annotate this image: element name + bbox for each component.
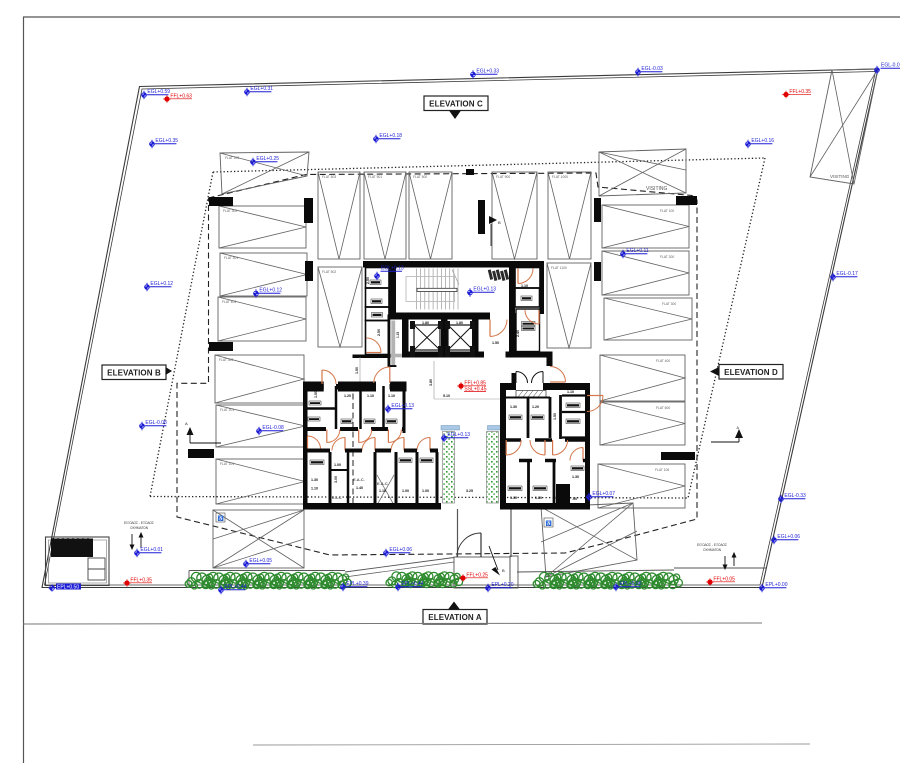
svg-text:A: A <box>185 421 188 426</box>
svg-text:EGL+0.05: EGL+0.05 <box>249 558 272 564</box>
svg-text:1.80: 1.80 <box>456 321 463 325</box>
svg-text:EPL+0.20: EPL+0.20 <box>491 582 513 588</box>
svg-text:1.00: 1.00 <box>422 489 429 493</box>
svg-text:EGL+0.13: EGL+0.13 <box>381 266 404 272</box>
svg-text:EPL+0.00: EPL+0.00 <box>765 582 787 588</box>
svg-text:3.25: 3.25 <box>466 489 473 493</box>
svg-text:FLAT 106: FLAT 106 <box>655 468 669 472</box>
svg-text:1.10: 1.10 <box>311 487 318 491</box>
svg-text:FLAT 303: FLAT 303 <box>219 358 233 362</box>
svg-text:1.30: 1.30 <box>572 475 579 479</box>
svg-text:ΕΙΞΟΔΟΣ - ΕΞΟΔΟΣ: ΕΙΞΟΔΟΣ - ΕΞΟΔΟΣ <box>124 521 154 525</box>
svg-text:.90: .90 <box>572 497 577 501</box>
svg-text:EPL+0.39: EPL+0.39 <box>346 581 368 587</box>
svg-text:1.10: 1.10 <box>379 489 386 493</box>
svg-text:.50: .50 <box>553 496 558 500</box>
svg-text:1.30: 1.30 <box>311 478 318 482</box>
svg-text:EGL+0.12: EGL+0.12 <box>259 288 282 294</box>
svg-text:♿: ♿ <box>218 515 224 522</box>
svg-text:FLAT 1100: FLAT 1100 <box>551 266 567 270</box>
svg-text:1.50: 1.50 <box>355 367 359 374</box>
svg-text:FLAT 503: FLAT 503 <box>322 175 336 179</box>
svg-text:2.40: 2.40 <box>516 330 520 337</box>
svg-text:3.80: 3.80 <box>429 379 433 386</box>
svg-text:E.A.C.: E.A.C. <box>377 481 389 486</box>
svg-text:FLAT 302: FLAT 302 <box>223 209 237 213</box>
svg-text:EGL-0.03: EGL-0.03 <box>641 66 663 72</box>
svg-text:EGL+0.18: EGL+0.18 <box>379 133 402 139</box>
svg-text:3.00: 3.00 <box>334 476 338 483</box>
svg-text:EPL+0.06: EPL+0.06 <box>619 581 641 587</box>
svg-text:FLAT 201: FLAT 201 <box>220 408 234 412</box>
svg-text:EGL+0.07: EGL+0.07 <box>592 491 615 497</box>
svg-text:FLAT 100: FLAT 100 <box>660 209 674 213</box>
svg-text:EGL-0.33: EGL-0.33 <box>784 493 806 499</box>
svg-text:EGL+0.13: EGL+0.13 <box>391 403 414 409</box>
svg-text:EGL+0.16: EGL+0.16 <box>751 138 774 144</box>
svg-text:FLAT 900: FLAT 900 <box>496 175 510 179</box>
svg-text:FLAT 501: FLAT 501 <box>368 175 382 179</box>
svg-text:♿: ♿ <box>546 520 552 527</box>
svg-text:EGL+0.13: EGL+0.13 <box>473 287 496 293</box>
svg-text:EGL+0.31: EGL+0.31 <box>250 86 273 92</box>
svg-text:ELEVATION B: ELEVATION B <box>107 369 161 378</box>
svg-text:ELEVATION D: ELEVATION D <box>724 368 778 377</box>
svg-text:E.A.C.: E.A.C. <box>332 496 342 500</box>
svg-text:EGL+0.06: EGL+0.06 <box>777 534 800 540</box>
svg-text:1.00: 1.00 <box>334 463 341 467</box>
svg-text:1.40: 1.40 <box>356 486 363 490</box>
svg-text:1.50: 1.50 <box>492 341 499 345</box>
svg-text:FLAT 1000: FLAT 1000 <box>552 175 568 179</box>
svg-text:1.10: 1.10 <box>567 390 574 394</box>
svg-text:1.50: 1.50 <box>553 413 557 420</box>
svg-text:EGL-0.08: EGL-0.08 <box>145 420 167 426</box>
svg-text:VISITING: VISITING <box>830 174 850 179</box>
svg-text:1.20: 1.20 <box>532 405 539 409</box>
svg-text:FLAT 502: FLAT 502 <box>322 270 336 274</box>
svg-text:EGL-0.08: EGL-0.08 <box>262 425 284 431</box>
svg-text:E.A.C.: E.A.C. <box>353 477 365 482</box>
svg-text:ΟΧΗΜΑΤΩΝ: ΟΧΗΜΑΤΩΝ <box>130 526 149 530</box>
svg-text:EGL+0.33: EGL+0.33 <box>476 69 499 75</box>
svg-text:EPL+0.44: EPL+0.44 <box>401 581 423 587</box>
svg-text:2.50: 2.50 <box>366 277 370 284</box>
svg-text:FLAT 400: FLAT 400 <box>656 359 670 363</box>
svg-text:B: B <box>502 568 505 573</box>
svg-text:EGL-0.0: EGL-0.0 <box>881 63 900 69</box>
svg-text:1.10: 1.10 <box>367 394 374 398</box>
svg-text:FLAT 101: FLAT 101 <box>220 462 234 466</box>
svg-text:FLAT 200: FLAT 200 <box>660 255 674 259</box>
svg-text:FLAT 301: FLAT 301 <box>224 256 238 260</box>
svg-text:1.30: 1.30 <box>535 496 542 500</box>
svg-text:ΟΧΗΜΑΤΩΝ: ΟΧΗΜΑΤΩΝ <box>703 548 722 552</box>
svg-text:FLAT 500: FLAT 500 <box>413 175 427 179</box>
svg-text:2.50: 2.50 <box>377 329 381 336</box>
svg-text:EGL+0.12: EGL+0.12 <box>150 281 173 287</box>
svg-text:B: B <box>498 220 501 225</box>
svg-text:FLAT 103: FLAT 103 <box>225 156 239 160</box>
svg-text:ELEVATION C: ELEVATION C <box>429 100 483 109</box>
svg-text:EGL+0.25: EGL+0.25 <box>256 156 279 162</box>
svg-text:FLAT 600: FLAT 600 <box>656 406 670 410</box>
svg-text:EGL+0.01: EGL+0.01 <box>140 547 163 553</box>
svg-text:1.20: 1.20 <box>344 394 351 398</box>
svg-text:EGL+0.35: EGL+0.35 <box>155 138 178 144</box>
svg-text:EGL+0.59: EGL+0.59 <box>147 89 170 95</box>
svg-text:1.00: 1.00 <box>402 489 409 493</box>
svg-text:1.30: 1.30 <box>510 405 517 409</box>
svg-text:FLAT 403: FLAT 403 <box>222 300 236 304</box>
svg-text:1.10: 1.10 <box>388 394 395 398</box>
svg-text:1.30: 1.30 <box>510 496 517 500</box>
svg-text:1.80: 1.80 <box>422 321 429 325</box>
svg-text:VISITING: VISITING <box>646 186 668 192</box>
svg-text:EPL+0.50: EPL+0.50 <box>57 584 79 590</box>
svg-text:EGL+0.11: EGL+0.11 <box>626 248 649 254</box>
svg-text:1.15: 1.15 <box>396 332 400 338</box>
svg-text:1.50: 1.50 <box>314 391 318 398</box>
svg-text:ΕΙΞΟΔΟΣ - ΕΞΟΔΟΣ: ΕΙΞΟΔΟΣ - ΕΞΟΔΟΣ <box>697 543 727 547</box>
svg-text:ELEVATION A: ELEVATION A <box>428 613 482 622</box>
svg-text:EGL+0.13: EGL+0.13 <box>447 432 470 438</box>
svg-text:FLAT 300: FLAT 300 <box>662 302 676 306</box>
svg-text:EGL-0.17: EGL-0.17 <box>836 271 858 277</box>
svg-text:EPL+0.44: EPL+0.44 <box>224 584 246 590</box>
svg-text:EGL+0.06: EGL+0.06 <box>389 547 412 553</box>
svg-text:5.10: 5.10 <box>443 394 450 398</box>
